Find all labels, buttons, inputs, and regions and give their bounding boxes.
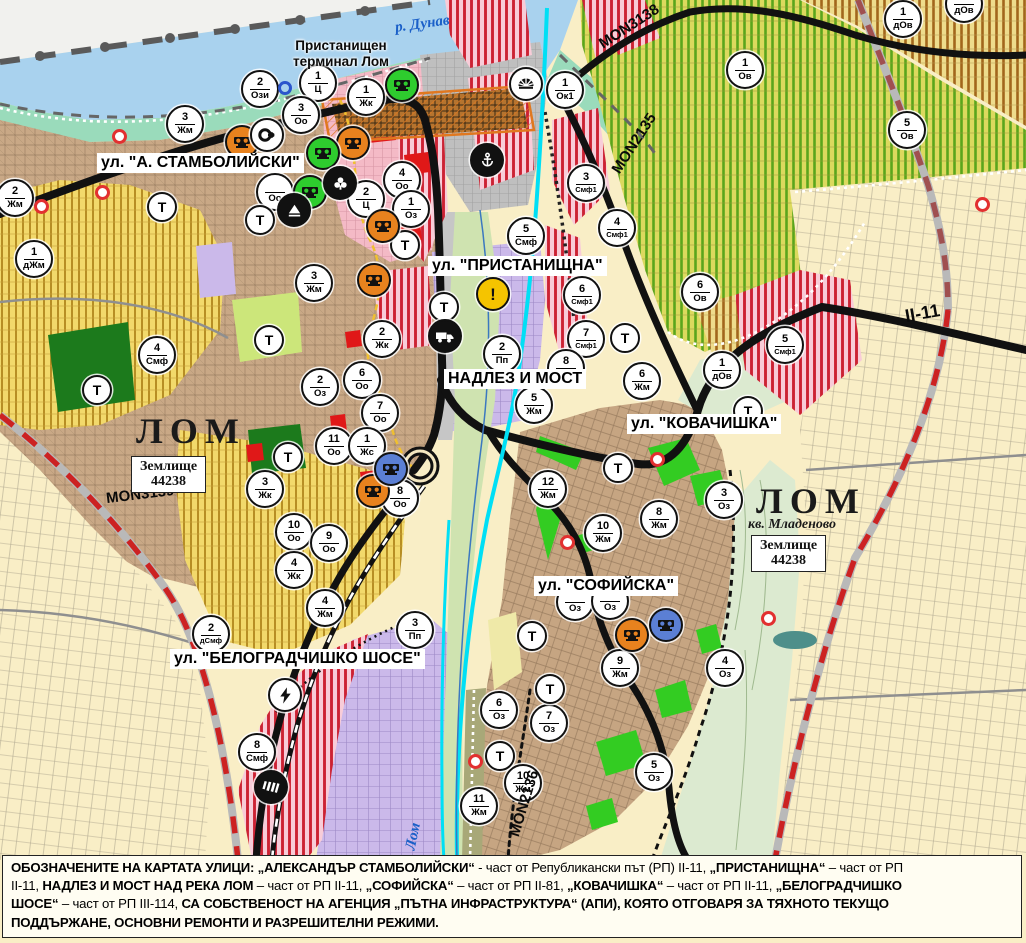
caption-line: II-11, НАДЛЕЗ И МОСТ НАД РЕКА ЛОМ – част… [11,877,1011,895]
caption-line: ШОСЕ“ – част от РП III-114, СА СОБСТВЕНО… [11,895,1011,913]
caption-line: ОБОЗНАЧЕНИТЕ НА КАРТАТА УЛИЦИ: „АЛЕКСАНД… [11,859,1011,877]
map-canvas: 2Жм1дЖм3Жм2Ози1Ц3Оо1ЖкОо4Оо2Ц1Оз3Жм2Жк4С… [0,0,1026,943]
base-map-svg [0,0,1026,943]
caption-line: ПОДДЪРЖАНЕ, ОСНОВНИ РЕМОНТИ И РАЗРЕШИТЕЛ… [11,914,1011,932]
map-caption: ОБОЗНАЧЕНИТЕ НА КАРТАТА УЛИЦИ: „АЛЕКСАНД… [2,855,1022,938]
